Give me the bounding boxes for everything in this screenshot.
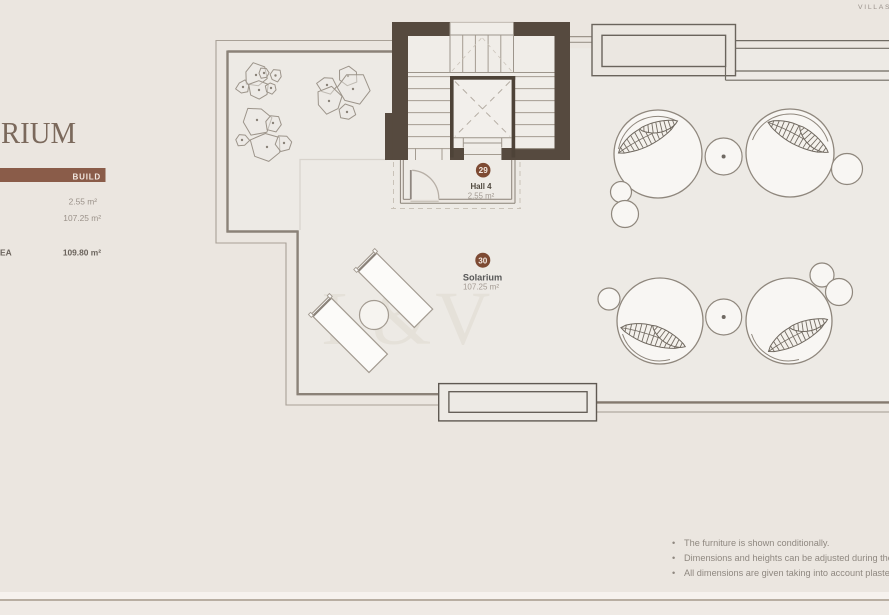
svg-text:2.55 m²: 2.55 m² xyxy=(468,192,495,201)
svg-text:EA: EA xyxy=(0,248,12,258)
svg-text:BUILD: BUILD xyxy=(73,172,101,181)
svg-text:•: • xyxy=(672,553,675,563)
svg-text:All dimensions are given takin: All dimensions are given taking into acc… xyxy=(684,568,889,578)
svg-text:107.25 m²: 107.25 m² xyxy=(63,213,101,223)
svg-text:Dimensions and heights can be: Dimensions and heights can be adjusted d… xyxy=(684,553,889,563)
svg-text:Solarium: Solarium xyxy=(463,273,502,283)
svg-text:29: 29 xyxy=(479,166,489,175)
svg-text:Hall 4: Hall 4 xyxy=(470,182,492,191)
svg-text:2.55 m²: 2.55 m² xyxy=(69,196,98,206)
svg-text:The furniture is shown conditi: The furniture is shown conditionally. xyxy=(684,538,829,548)
svg-text:•: • xyxy=(672,568,675,578)
svg-text:107.25 m²: 107.25 m² xyxy=(463,282,499,291)
svg-text:RIUM: RIUM xyxy=(1,115,76,150)
svg-text:109.80 m²: 109.80 m² xyxy=(63,248,101,258)
svg-text:30: 30 xyxy=(478,256,488,265)
svg-text:VILLAS: VILLAS xyxy=(858,4,889,11)
svg-text:•: • xyxy=(672,538,675,548)
